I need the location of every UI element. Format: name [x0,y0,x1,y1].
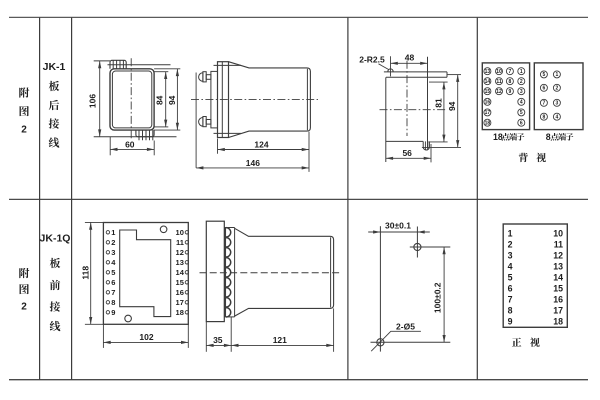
svg-text:124: 124 [254,140,268,150]
svg-text:10: 10 [176,228,184,237]
svg-text:3: 3 [111,248,115,257]
svg-text:14: 14 [176,268,185,277]
svg-text:2: 2 [21,125,27,136]
svg-text:118: 118 [81,266,91,280]
svg-text:16: 16 [176,288,184,297]
svg-text:2-Ø5: 2-Ø5 [396,322,415,332]
svg-text:14: 14 [485,79,491,85]
svg-text:5: 5 [111,268,115,277]
svg-text:13: 13 [553,261,563,271]
svg-text:9: 9 [509,89,512,95]
svg-text:2: 2 [556,86,559,92]
svg-text:102: 102 [139,332,153,342]
svg-text:60: 60 [125,140,135,150]
svg-text:1: 1 [111,228,115,237]
svg-text:15: 15 [176,278,184,287]
svg-text:18: 18 [493,132,503,142]
svg-text:15: 15 [485,89,491,95]
svg-text:3: 3 [508,250,513,260]
svg-text:6: 6 [520,121,523,127]
svg-text:5: 5 [508,272,513,282]
svg-text:8: 8 [508,305,513,315]
svg-text:17: 17 [553,305,563,315]
svg-text:16: 16 [553,294,563,304]
svg-text:10: 10 [553,228,563,238]
svg-text:81: 81 [433,98,443,108]
svg-text:13: 13 [176,258,184,267]
svg-text:30±0.1: 30±0.1 [385,220,411,230]
svg-text:94: 94 [447,101,457,111]
svg-text:18: 18 [553,316,563,326]
svg-text:14: 14 [553,272,563,282]
svg-text:7: 7 [508,294,513,304]
svg-text:6: 6 [543,86,546,92]
svg-text:4: 4 [508,261,513,271]
svg-text:8: 8 [111,298,115,307]
svg-text:1: 1 [520,69,523,75]
svg-text:11: 11 [176,238,184,247]
svg-text:2: 2 [508,239,513,249]
svg-text:8: 8 [509,79,512,85]
svg-text:JK-1: JK-1 [43,61,66,73]
svg-text:2: 2 [520,79,523,85]
svg-text:35: 35 [213,335,223,345]
svg-text:6: 6 [111,278,115,287]
svg-text:84: 84 [155,95,165,105]
svg-text:121: 121 [273,335,287,345]
svg-text:17: 17 [485,110,491,116]
svg-text:13: 13 [485,69,491,75]
svg-text:9: 9 [508,316,513,326]
svg-text:7: 7 [509,69,512,75]
svg-text:94: 94 [167,95,177,105]
svg-text:12: 12 [553,250,563,260]
svg-text:17: 17 [176,298,184,307]
svg-text:5: 5 [520,110,523,116]
svg-text:18: 18 [176,308,184,317]
svg-text:3: 3 [556,101,559,107]
svg-text:11: 11 [554,239,563,249]
svg-text:12: 12 [176,248,184,257]
svg-text:12: 12 [496,89,502,95]
svg-text:3: 3 [520,89,523,95]
svg-text:1: 1 [508,228,513,238]
svg-text:7: 7 [111,288,115,297]
svg-text:7: 7 [543,101,546,107]
svg-text:8: 8 [546,132,551,142]
svg-text:15: 15 [553,283,563,293]
svg-text:1: 1 [556,72,559,78]
svg-text:56: 56 [402,148,412,158]
svg-text:106: 106 [87,94,97,108]
svg-text:6: 6 [508,283,513,293]
svg-text:JK-1Q: JK-1Q [40,233,71,245]
svg-text:4: 4 [520,100,523,106]
svg-text:48: 48 [405,53,415,63]
svg-text:9: 9 [111,308,115,317]
svg-text:2: 2 [111,238,115,247]
svg-text:2-R2.5: 2-R2.5 [359,55,385,65]
svg-text:16: 16 [485,100,491,106]
svg-text:8: 8 [543,115,546,121]
svg-text:10: 10 [496,69,502,75]
svg-text:2: 2 [21,302,27,313]
svg-text:5: 5 [543,72,546,78]
svg-text:4: 4 [556,115,559,121]
svg-text:100±0.2: 100±0.2 [432,282,442,313]
svg-text:18: 18 [485,121,491,127]
svg-text:146: 146 [246,158,260,168]
svg-text:11: 11 [496,79,502,85]
